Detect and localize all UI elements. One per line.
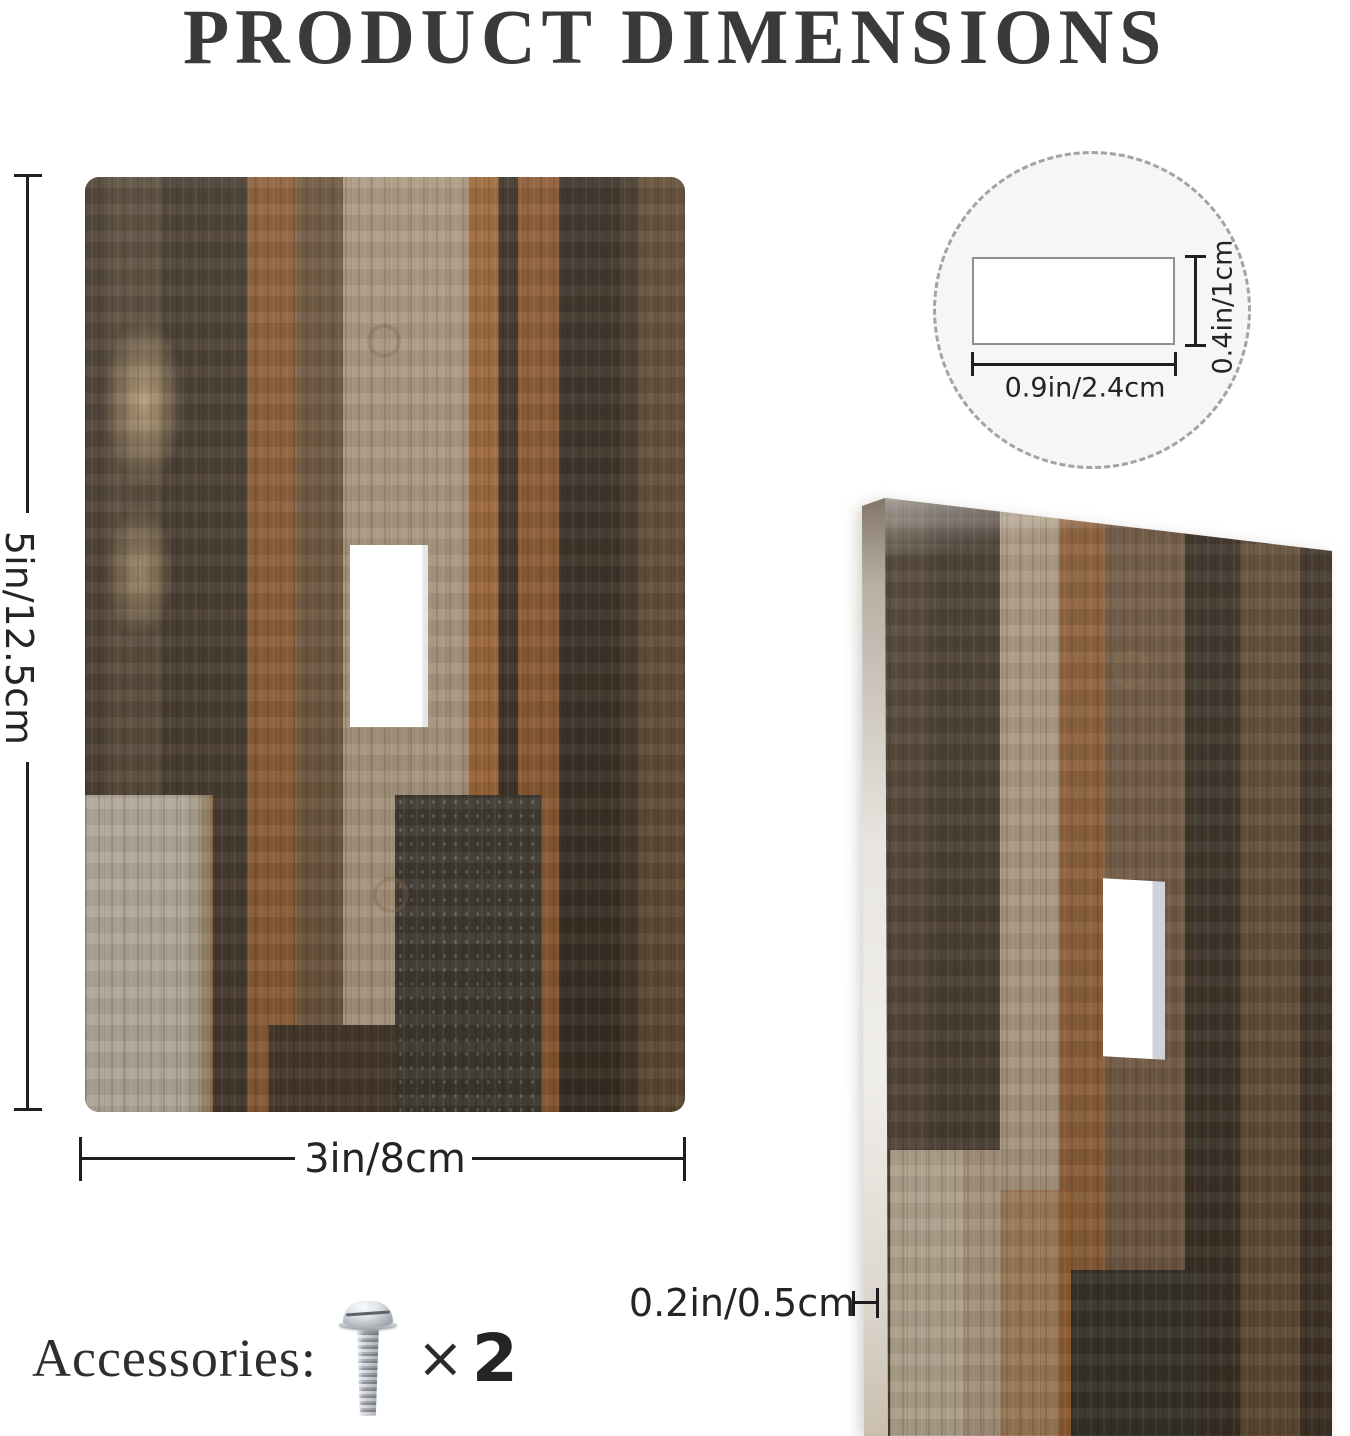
accessories-label: Accessories: [32,1327,317,1389]
screw-boss-mark [1112,650,1150,688]
toggle-switch-hole-perspective [1103,878,1165,1059]
wood-beige-speckle-patch [103,317,185,487]
multiplier-sign: × [417,1326,464,1391]
wood-rust-streak-patch [1000,1190,1072,1436]
accessories-count: 2 [472,1320,518,1397]
thickness-marker-line [855,1301,876,1304]
dimension-cap-right [683,1137,686,1181]
hole-detail-rectangle [972,257,1175,345]
thickness-marker [852,1288,880,1318]
screw-slot [346,1310,390,1316]
wood-light-gray-plank-patch [85,795,213,1112]
dimension-line-segment [26,762,29,1110]
screw-icon [339,1301,397,1416]
height-dimension-label: 5in/12.5cm [0,531,41,745]
wood-light-gray-plank-patch [890,1150,1002,1436]
side-view-group [850,490,1340,1436]
dimension-cap-bottom [14,1108,42,1111]
wood-beige-speckle-patch [107,507,173,637]
dimension-line-segment [971,363,1177,366]
product-dimensions-infographic: PRODUCT DIMENSIONS 5in/12.5cm [0,0,1350,1436]
page-title: PRODUCT DIMENSIONS [20,0,1330,82]
screw-boss-mark [367,324,401,358]
wood-dark-plank-patch [269,1025,395,1112]
toggle-switch-hole-front [350,545,428,727]
screw-head [343,1301,393,1327]
wood-dark-mottled-patch [395,795,541,1112]
hole-width-dimension-label: 0.9in/2.4cm [1005,373,1166,404]
switch-plate-perspective-view [850,490,1340,1436]
hole-height-dimension-label: 0.4in/1cm [1208,240,1239,375]
dimension-cap-right [1174,352,1177,376]
width-dimension-label: 3in/8cm [304,1136,466,1182]
accessories-row: Accessories: × 2 [32,1292,518,1424]
dimension-line-segment [26,174,29,513]
thickness-marker-right-tick [876,1288,879,1318]
thickness-dimension-label: 0.2in/0.5cm [629,1281,855,1325]
screw-threaded-shank [357,1328,379,1416]
wood-dark-plank-patch [1071,1270,1201,1436]
dimension-line-segment [82,1157,295,1160]
screw-boss-mark [373,877,409,913]
dimension-line-segment [1194,255,1197,347]
switch-plate-front-view [85,177,685,1112]
top-edge-glare [880,490,1340,570]
dimension-cap-bottom [1185,344,1206,347]
dimension-line-segment [472,1157,683,1160]
